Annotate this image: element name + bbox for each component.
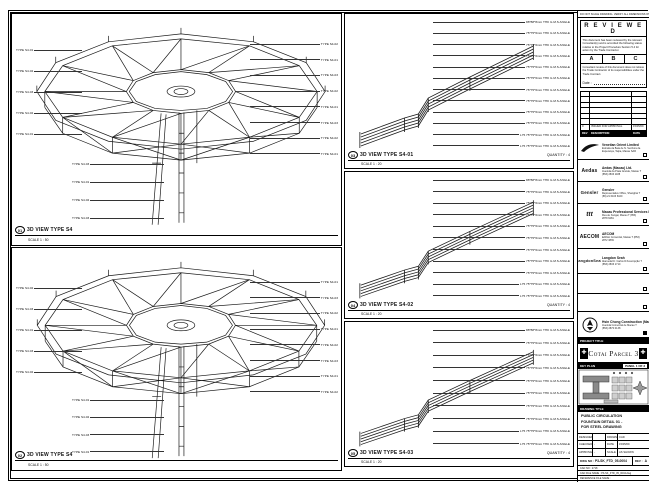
date-label: DATE [606,441,618,449]
leader-line [90,417,164,418]
member-annotation: 75*75*6mm THK G.M.S ANGLE [433,353,570,357]
consultant-row-gensler: Gensler Gensler Representative Office, S… [578,182,649,204]
leader-line [433,89,525,90]
panel-scale: SCALE 1 : 20 [361,312,382,316]
banner-ornament-left-icon: ✚ [580,348,588,359]
langdon-seah-logo: LangdonSeah [578,259,601,263]
leader-line [250,44,320,45]
member-annotation: L75 75*75*6mm THK G.M.S ANGLE [433,442,570,446]
sign-off-checkbox[interactable] [643,219,647,223]
consultant-row-langdon-seah: LangdonSeah Langdon Seah Alameda Dr. Car… [578,249,649,274]
leader-line [433,272,525,273]
leader-line [34,50,82,51]
member-annotation: 75*75*6mm THK G.M.S ANGLE [433,366,570,370]
detail-ref-bubble: 01 [15,226,25,234]
reviewed-body-1: This document has been reviewed by the r… [581,37,646,54]
quantity-note: QUANTITY : 4 [547,451,570,455]
leader-line [433,134,519,135]
leader-line [433,431,519,432]
designed-value [593,434,606,442]
revision-date: 15/05/09 [632,125,646,130]
leader-line [250,75,320,76]
leader-label: TYPE S4-01 [16,328,82,332]
leader-label: TYPE S4-03 [250,73,338,77]
rev-label: REV : [635,459,643,463]
leader-line [433,380,525,381]
member-annotation: L75 75*75*6mm THK G.M.S ANGLE [433,429,570,433]
revision-header-rev: REV [581,132,590,136]
leader-line [250,313,320,314]
member-annotation: 75*75*6mm THK G.M.S ANGLE [433,248,570,252]
leader-line [433,191,525,192]
member-annotation: 75*75*6mm THK G.M.S ANGLE [433,31,570,35]
panel-scale: SCALE 1 : 50 [28,238,49,242]
reviewed-body-2: Consultant review of this document does … [581,64,646,78]
leader-label: TYPE S4-01 [250,152,338,156]
leader-label: TYPE S4-02 [250,89,338,93]
leader-label: TYPE S4-02 [250,42,338,46]
leader-label: TYPE S4-01 [16,48,82,52]
leader-line [34,71,82,72]
leader-label: TYPE S4-02 [72,415,164,419]
leader-label: TYPE S4-03 [250,121,338,125]
leader-line [90,218,164,219]
leader-line [433,249,525,250]
member-annotations: 88*88*8mm THK G.M.S ANGLE75*75*6mm THK G… [433,178,570,298]
panel-title: 3D VIEW TYPE S4 [27,227,73,233]
scale-label: SCALE [606,449,618,457]
sign-off-checkbox[interactable] [643,305,647,309]
leader-line [433,33,525,34]
leader-line [34,372,82,373]
venetian-swoosh-logo [578,143,601,153]
panel-caption: 02 3D VIEW TYPE S4 [15,451,338,461]
status-a[interactable]: A [581,55,603,63]
leader-line [433,418,525,419]
panel-3d-view-s4-03: 88*88*8mm THK G.M.S ANGLE75*75*6mm THK G… [344,321,574,467]
consultant-row-aedas: Aedas Aedas (Macau) Ltd. Avenida da Prai… [578,160,649,182]
panel-caption: 04 3D VIEW TYPE S4-02 QUANTITY : 4 [348,301,570,311]
leader-labels-left: TYPE S4-01TYPE S4-02TYPE S4-03TYPE S4-02… [16,48,82,136]
checked-value: - [593,441,606,449]
reviewed-title: R E V I E W E D [581,21,646,37]
leader-label: TYPE S4-01 [16,132,82,136]
leader-label: TYPE S4-02 [72,198,164,202]
member-annotation: 88*88*8mm THK G.M.S ANGLE [433,20,570,24]
leader-line [250,91,320,92]
leader-line [433,261,525,262]
key-plan-map [578,369,649,406]
leader-line [250,344,320,345]
leader-line [433,100,525,101]
mps-logo: ttt [578,211,601,218]
date-entry-line[interactable] [594,81,645,85]
panel-note: PANEL 1 OF 3 [623,364,647,368]
consultant-row-aecom: AECOM AECOM Edificio Comercial, Macau T … [578,226,649,249]
leader-line [433,284,519,285]
panel-caption: 05 3D VIEW TYPE S4-03 QUANTITY : 4 [348,449,570,459]
leader-line [34,134,82,135]
consultant-row-empty-1 [578,274,649,294]
consultant-address: Representative Office, Shanghai T (86) 2… [602,192,642,198]
panel-title: 3D VIEW TYPE S4-03 [360,450,413,456]
project-title-text: Cotai Parcel 3 [588,349,638,358]
reviewed-stamp: R E V I E W E D This document has been r… [580,20,647,88]
status-c[interactable]: C [625,55,646,63]
consultant-address: Rua de Xangai, Macau T (853) 2878 6281 [602,214,642,220]
consultant-row-mps: ttt Macau Professional Services Ltd. Rua… [578,204,649,226]
leader-line [34,113,82,114]
leader-line [433,214,525,215]
member-annotation: 88*88*8mm THK G.M.S ANGLE [433,178,570,182]
leader-line [433,203,525,204]
leader-line [34,330,82,331]
leader-line [250,391,320,392]
leader-label: TYPE S4-02 [250,343,338,347]
key-plan-label: KEY PLAN [580,364,595,368]
leader-label: TYPE S4-03 [250,296,338,300]
leader-line [250,297,320,298]
leader-labels-left: TYPE S4-02TYPE S4-03TYPE S4-01TYPE S4-03… [16,286,82,374]
drawing-sheet-page: { "sheet_note": "DO NOT SCALE DRAWING. V… [0,0,650,488]
consultant-row-venetian: Venetian Orient Limited Estrada da Baía … [578,137,649,160]
leader-label: TYPE S4-03 [16,90,82,94]
leader-line [433,44,525,45]
member-annotation: 75*75*6mm THK G.M.S ANGLE [433,224,570,228]
approved-label: APPROVED [578,449,593,457]
leader-line [433,405,525,406]
leader-line [90,400,164,401]
leader-line [433,226,525,227]
banner-ornament-right-icon: ✚ [639,348,647,359]
drawn-value: CAD [618,434,649,442]
member-annotation: 75*75*6mm THK G.M.S ANGLE [433,236,570,240]
leader-label: TYPE S4-01 [250,105,338,109]
leader-labels-bottom: TYPE S4-01TYPE S4-02TYPE S4-03TYPE S4-01 [72,398,164,454]
consultant-address: Alameda Dr. Carlos D'Assumpção T (853) 2… [602,260,642,266]
leader-line [433,393,525,394]
consultant-address: Edificio Comercial, Macau T (853) 2872 3… [602,236,642,242]
member-annotation: 75*75*6mm THK G.M.S ANGLE [433,54,570,58]
panel-3d-view-s4-top: TYPE S4-01TYPE S4-02TYPE S4-03TYPE S4-02… [11,13,342,246]
drawing-title-line-3: FOR STEEL DRAWING [581,425,646,431]
leader-line [433,55,525,56]
consultant-address: Estrada da Baía de N. Senhora da Esperan… [602,147,642,153]
gensler-logo: Gensler [578,190,601,195]
cad-info-row-3: REFERENCE FILE NAME : [578,476,649,481]
leader-label: TYPE S4-03 [250,359,338,363]
leader-label: TYPE S4-01 [250,327,338,331]
leader-labels-right: TYPE S4-02TYPE S4-01TYPE S4-03TYPE S4-02… [250,42,338,156]
leader-line [34,309,82,310]
member-annotation: 75*75*6mm THK G.M.S ANGLE [433,65,570,69]
dwg-no-value: P3-SK_FTD_05-0004 [595,459,627,463]
consultant-row-empty-2 [578,294,649,312]
panel-title: 3D VIEW TYPE S4-02 [360,302,413,308]
panel-scale: SCALE 1 : 50 [28,463,49,467]
drawing-title: PUBLIC CIRCULATION FOUNTAIN DETAIL 01 - … [578,412,649,434]
leader-label: TYPE S4-02 [16,111,82,115]
detail-ref-bubble: 02 [15,451,25,459]
leader-line [90,164,164,165]
leader-line [433,145,519,146]
leader-label: TYPE S4-02 [16,69,82,73]
member-annotation: 75*75*6mm THK G.M.S ANGLE [433,190,570,194]
member-annotation: 88*88*8mm THK G.M.S ANGLE [433,328,570,332]
leader-label: TYPE S4-03 [72,162,164,166]
member-annotations: 88*88*8mm THK G.M.S ANGLE75*75*6mm THK G… [433,20,570,148]
leader-labels-right: TYPE S4-01TYPE S4-03TYPE S4-02TYPE S4-01… [250,280,338,394]
leader-label: TYPE S4-02 [250,311,338,315]
member-annotation: L75 75*75*6mm THK G.M.S ANGLE [433,133,570,137]
sheet-note: DO NOT SCALE DRAWING. VERIFY ALL DIMENSI… [578,11,649,18]
leader-label: TYPE S4-03 [72,433,164,437]
member-annotations: 88*88*8mm THK G.M.S ANGLE75*75*6mm THK G… [433,328,570,446]
leader-label: TYPE S4-03 [72,216,164,220]
revision-header-date: DATE [632,132,646,136]
drawn-label: DRAWN [606,434,618,442]
leader-line [433,443,519,444]
leader-label: TYPE S4-01 [250,58,338,62]
sheet-border: TYPE S4-01TYPE S4-02TYPE S4-03TYPE S4-02… [8,10,648,481]
member-annotation: 75*75*6mm THK G.M.S ANGLE [433,341,570,345]
leader-label: TYPE S4-02 [16,370,82,374]
member-annotation: 75*75*6mm THK G.M.S ANGLE [433,76,570,80]
project-title-banner: ✚ Cotai Parcel 3 ✚ [578,344,649,363]
panel-3d-view-s4-bottom: TYPE S4-02TYPE S4-03TYPE S4-01TYPE S4-03… [11,247,342,471]
leader-line [250,376,320,377]
member-annotation: L75 75*75*6mm THK G.M.S ANGLE [433,144,570,148]
leader-line [250,360,320,361]
sign-off-checkbox[interactable] [643,267,647,271]
date-value: 15/05/09 [618,441,649,449]
scale-value: AS SHOWN [618,449,649,457]
contractor-row-hsin-chong: Hsin Chong Construction (Macau) Ltd. Ave… [578,312,649,338]
designed-label: DESIGNED [578,434,593,442]
dwg-no-label: DWG NO : [580,459,594,463]
leader-label: TYPE S4-01 [250,280,338,284]
leader-line [250,122,320,123]
hsin-chong-emblem [578,317,601,333]
leader-line [250,59,320,60]
member-annotation: 75*75*6mm THK G.M.S ANGLE [433,99,570,103]
member-annotation: 75*75*6mm THK G.M.S ANGLE [433,417,570,421]
member-annotation: 75*75*6mm THK G.M.S ANGLE [433,88,570,92]
drawing-title-label: DRAWING TITLE [580,407,604,411]
leader-line [250,153,320,154]
leader-line [433,22,525,23]
revision-rev: 0 [581,125,590,130]
revision-table: 0 ISSUED FOR APPROVAL 15/05/09 REV DESCR… [580,91,647,138]
member-annotation: 75*75*6mm THK G.M.S ANGLE [433,271,570,275]
detail-ref-bubble: 05 [348,449,358,457]
leader-labels-bottom: TYPE S4-03TYPE S4-01TYPE S4-02TYPE S4-03 [72,162,164,220]
panel-title: 3D VIEW TYPE S4-01 [360,152,413,158]
leader-label: TYPE S4-03 [16,307,82,311]
leader-line [433,295,519,296]
leader-line [90,434,164,435]
member-annotation: 75*75*6mm THK G.M.S ANGLE [433,43,570,47]
date-label: Date : [583,81,592,85]
leader-line [433,367,525,368]
member-annotation: 75*75*6mm THK G.M.S ANGLE [433,379,570,383]
leader-label: TYPE S4-03 [16,349,82,353]
revision-header-row: REV DESCRIPTION DATE [581,131,646,137]
revision-header-description: DESCRIPTION [590,132,632,136]
member-annotation: 75*75*6mm THK G.M.S ANGLE [433,121,570,125]
leader-line [433,67,525,68]
quantity-note: QUANTITY : 4 [547,303,570,307]
leader-line [433,180,525,181]
reviewed-date-row: Date : [581,78,646,87]
panel-caption: 03 3D VIEW TYPE S4-01 QUANTITY : 4 [348,151,570,161]
checked-label: CHECKED [578,441,593,449]
sign-off-checkbox-filled[interactable] [643,331,647,335]
reviewed-status-row: A B C [581,54,646,64]
detail-ref-bubble: 04 [348,301,358,309]
aecom-logo: AECOM [578,234,601,240]
member-annotation: 75*75*6mm THK G.M.S ANGLE [433,404,570,408]
drawing-number-row: DWG NO : P3-SK_FTD_05-0004 REV : A [578,457,649,466]
member-annotation: 75*75*6mm THK G.M.S ANGLE [433,110,570,114]
title-block: DO NOT SCALE DRAWING. VERIFY ALL DIMENSI… [577,11,649,482]
leader-line [90,200,164,201]
leader-line [433,355,525,356]
leader-line [433,123,525,124]
member-annotation: 75*75*6mm THK G.M.S ANGLE [433,213,570,217]
leader-line [433,78,525,79]
member-annotation: L75 75*75*6mm THK G.M.S ANGLE [433,294,570,298]
leader-line [250,282,320,283]
aedas-logo: Aedas [578,168,601,174]
sign-off-checkbox[interactable] [643,242,647,246]
panel-title: 3D VIEW TYPE S4 [27,452,73,458]
leader-line [250,106,320,107]
panel-3d-view-s4-01: 88*88*8mm THK G.M.S ANGLE75*75*6mm THK G… [344,13,574,169]
leader-line [90,182,164,183]
key-plan-drawing [578,369,649,405]
sign-off-checkbox[interactable] [643,197,647,201]
consultant-address: Avenida da Praia Grande, Macau T (853) 2… [602,170,642,176]
leader-line [433,342,525,343]
member-annotation: 75*75*6mm THK G.M.S ANGLE [433,201,570,205]
leader-label: TYPE S4-01 [250,374,338,378]
panel-scale: SCALE 1 : 20 [361,460,382,464]
drawing-info-table: DESIGNED DRAWN CAD CHECKED - DATE 15/05/… [578,434,649,458]
leader-line [34,92,82,93]
leader-line [433,112,525,113]
leader-label: TYPE S4-02 [250,136,338,140]
rev-value: A [645,459,647,463]
quantity-note: QUANTITY : 4 [547,153,570,157]
leader-line [250,329,320,330]
sign-off-checkbox[interactable] [643,287,647,291]
contractor-address: Avenida Comercial de Macau T (853) 2870 … [602,324,642,330]
panel-scale: SCALE 1 : 20 [361,162,382,166]
leader-label: TYPE S4-01 [72,180,164,184]
leader-line [433,330,525,331]
project-title-label: PROJECT TITLE [580,339,603,343]
leader-label: TYPE S4-02 [16,286,82,290]
member-annotation: 75*75*6mm THK G.M.S ANGLE [433,391,570,395]
member-annotation: 75*75*6mm THK G.M.S ANGLE [433,259,570,263]
revision-description: ISSUED FOR APPROVAL [590,125,632,130]
panel-caption: 01 3D VIEW TYPE S4 [15,226,338,236]
sign-off-checkbox[interactable] [643,153,647,157]
leader-line [250,138,320,139]
member-annotation: L75 75*75*6mm THK G.M.S ANGLE [433,282,570,286]
approved-value: - [593,449,606,457]
panel-3d-view-s4-02: 88*88*8mm THK G.M.S ANGLE75*75*6mm THK G… [344,171,574,319]
status-b[interactable]: B [603,55,625,63]
leader-line [34,288,82,289]
leader-label: TYPE S4-02 [250,390,338,394]
detail-ref-bubble: 03 [348,151,358,159]
leader-line [433,237,525,238]
leader-line [34,351,82,352]
leader-label: TYPE S4-01 [72,398,164,402]
sign-off-checkbox[interactable] [643,175,647,179]
